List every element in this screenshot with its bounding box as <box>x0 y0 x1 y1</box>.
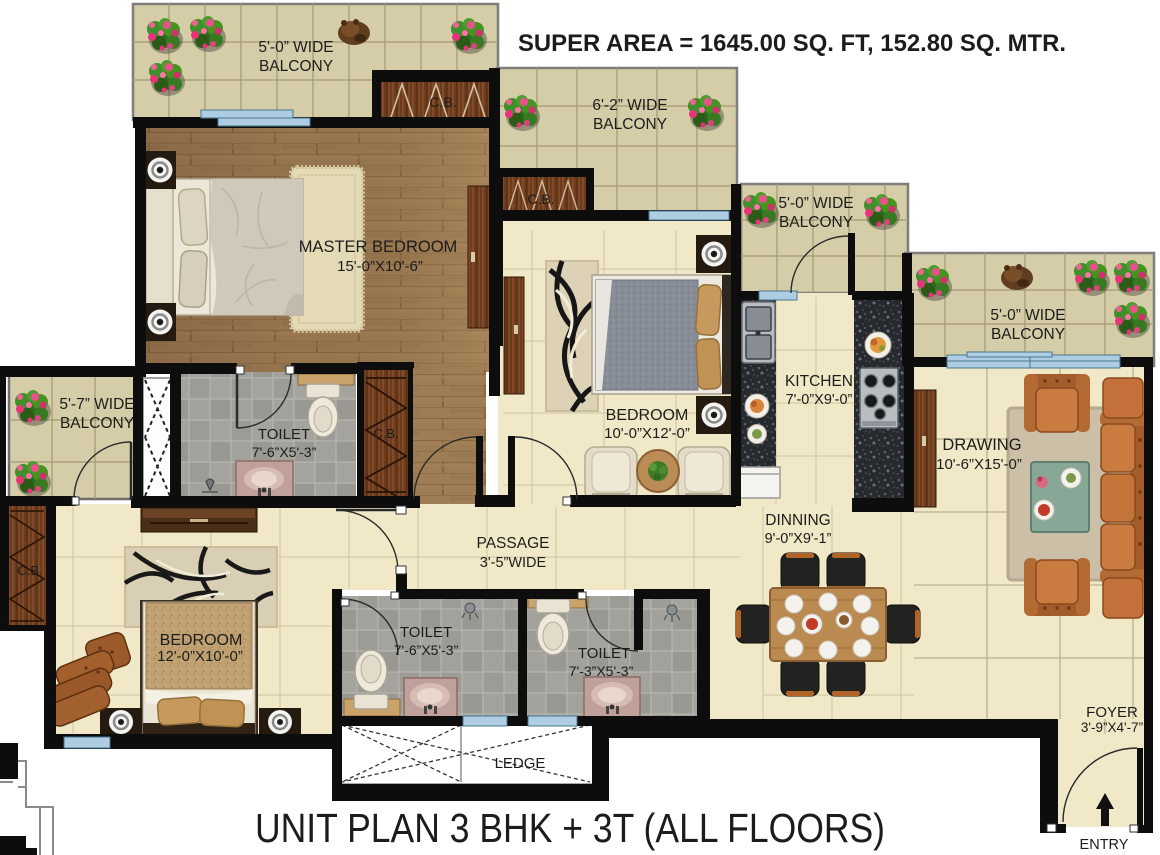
svg-text:PASSAGE: PASSAGE <box>477 535 550 552</box>
svg-text:C.B.: C.B. <box>373 426 398 441</box>
svg-text:TOILET: TOILET <box>400 624 452 641</box>
svg-text:6'-2” WIDE: 6'-2” WIDE <box>592 97 667 114</box>
svg-text:UNIT PLAN 3 BHK + 3T (ALL FLOO: UNIT PLAN 3 BHK + 3T (ALL FLOORS) <box>255 805 885 851</box>
svg-text:BALCONY: BALCONY <box>779 214 853 231</box>
svg-text:5'-7” WIDE: 5'-7” WIDE <box>59 396 134 413</box>
svg-text:BEDROOM: BEDROOM <box>160 632 243 649</box>
svg-text:TOILET: TOILET <box>578 645 630 662</box>
svg-text:TOILET: TOILET <box>258 426 310 443</box>
svg-text:10'-0”X12'-0”: 10'-0”X12'-0” <box>604 425 690 442</box>
svg-text:BALCONY: BALCONY <box>593 116 667 133</box>
svg-text:ENTRY: ENTRY <box>1080 837 1129 853</box>
svg-text:7'-6”X5'-3”: 7'-6”X5'-3” <box>394 642 459 658</box>
svg-text:FOYER: FOYER <box>1086 704 1138 721</box>
svg-text:BALCONY: BALCONY <box>991 326 1065 343</box>
svg-text:10'-6”X15'-0”: 10'-6”X15'-0” <box>936 456 1022 473</box>
svg-text:9'-0”X9'-1”: 9'-0”X9'-1” <box>765 531 832 547</box>
svg-text:5'-0” WIDE: 5'-0” WIDE <box>778 195 853 212</box>
svg-text:15'-0”X10'-6”: 15'-0”X10'-6” <box>337 258 423 275</box>
svg-text:KITCHEN: KITCHEN <box>785 373 853 390</box>
svg-text:5'-0” WIDE: 5'-0” WIDE <box>258 39 333 56</box>
svg-text:BALCONY: BALCONY <box>60 415 134 432</box>
svg-text:12'-0”X10'-0”: 12'-0”X10'-0” <box>157 648 243 665</box>
svg-text:LEDGE: LEDGE <box>495 755 546 772</box>
svg-text:BALCONY: BALCONY <box>259 58 333 75</box>
svg-text:7'-3”X5'-3”: 7'-3”X5'-3” <box>569 663 634 679</box>
svg-text:7'-0”X9'-0”: 7'-0”X9'-0” <box>786 392 853 408</box>
svg-text:DRAWING: DRAWING <box>942 436 1021 454</box>
svg-text:C.B.: C.B. <box>17 563 42 578</box>
svg-text:MASTER BEDROOM: MASTER BEDROOM <box>299 238 458 256</box>
svg-text:3'-5”WIDE: 3'-5”WIDE <box>480 555 547 571</box>
svg-text:C.B.: C.B. <box>527 191 554 207</box>
svg-text:5'-0” WIDE: 5'-0” WIDE <box>990 307 1065 324</box>
svg-text:3'-9”X4'-7”: 3'-9”X4'-7” <box>1081 720 1143 735</box>
svg-text:DINNING: DINNING <box>765 512 830 529</box>
svg-text:7'-6”X5'-3”: 7'-6”X5'-3” <box>252 444 317 460</box>
svg-text:BEDROOM: BEDROOM <box>606 407 689 424</box>
svg-text:C.B.: C.B. <box>429 94 456 110</box>
svg-text:SUPER AREA = 1645.00 SQ. FT, 1: SUPER AREA = 1645.00 SQ. FT, 152.80 SQ. … <box>518 30 1066 57</box>
